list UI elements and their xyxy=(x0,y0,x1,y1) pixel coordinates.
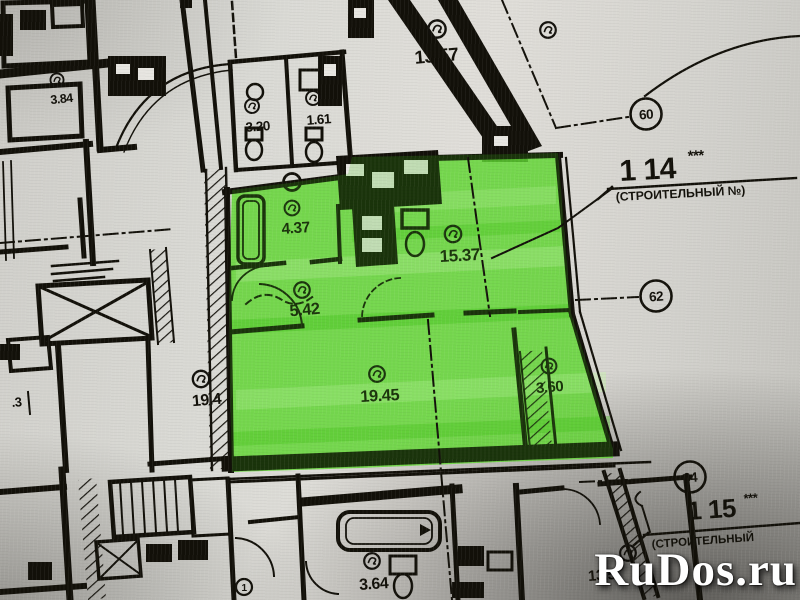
toilet-bowl-icon xyxy=(246,140,262,160)
axis-line xyxy=(576,297,638,300)
axis-line xyxy=(556,117,628,128)
room-area-label: 3.20 xyxy=(245,118,270,135)
room-number-badge-icon xyxy=(540,22,557,39)
toilet-icon xyxy=(390,556,416,598)
door-arc xyxy=(236,538,274,576)
floorplan-drawing: 13.57 3.84 3.20 1.61 4.37 5.42 15.37 19.… xyxy=(0,0,800,600)
axis-badge-label: 62 xyxy=(649,289,664,305)
site-boundary-curve xyxy=(645,36,800,96)
bathtub-icon xyxy=(338,512,440,550)
apartment-number: 1 15 xyxy=(686,493,737,526)
circled-one-badge: 1 xyxy=(236,579,252,595)
room-area-label: 1.61 xyxy=(306,111,332,128)
apartment-number: 1 14 xyxy=(619,152,678,188)
room-area-label: 13.57 xyxy=(414,43,460,68)
axis-badge-62: 62 xyxy=(641,281,672,312)
apartment-number-stars: *** xyxy=(687,147,705,165)
room-area-label: 3.64 xyxy=(359,575,390,594)
apartment-number-stars: *** xyxy=(743,490,759,506)
axis-badge-label: 60 xyxy=(639,107,654,123)
room-number-badge-icon xyxy=(428,20,446,38)
toilet-tank-icon xyxy=(306,128,322,140)
room-area-label: 3.84 xyxy=(50,91,74,107)
toilet-bowl-icon xyxy=(306,142,322,162)
watermark-rudos: RuDos.ru xyxy=(594,547,797,594)
highlighter-tint-overlay xyxy=(229,153,613,472)
stairs-icon xyxy=(110,477,194,537)
axis-badge-60: 60 xyxy=(631,99,662,130)
room-area-label: 19.4 xyxy=(191,391,222,411)
door-arc xyxy=(564,489,600,524)
elevator-shaft-icon xyxy=(38,280,152,344)
floorplan-photo: 13.57 3.84 3.20 1.61 4.37 5.42 15.37 19.… xyxy=(0,0,800,600)
room-number-badge-icon xyxy=(245,99,260,114)
room-number-badge-icon xyxy=(192,370,210,388)
circled-one-label: 1 xyxy=(241,583,247,594)
axis-line xyxy=(0,229,174,243)
apartment-callout-115: 1 15 *** (СТРОИТЕЛЬНЫЙ xyxy=(634,490,800,551)
sink-icon xyxy=(247,84,263,100)
room-number-badge-icon xyxy=(364,553,381,570)
door-arc xyxy=(306,562,338,594)
room-area-label: .3 xyxy=(11,394,22,410)
axis-badge-label: 64 xyxy=(683,469,699,485)
leader-line xyxy=(635,492,642,506)
